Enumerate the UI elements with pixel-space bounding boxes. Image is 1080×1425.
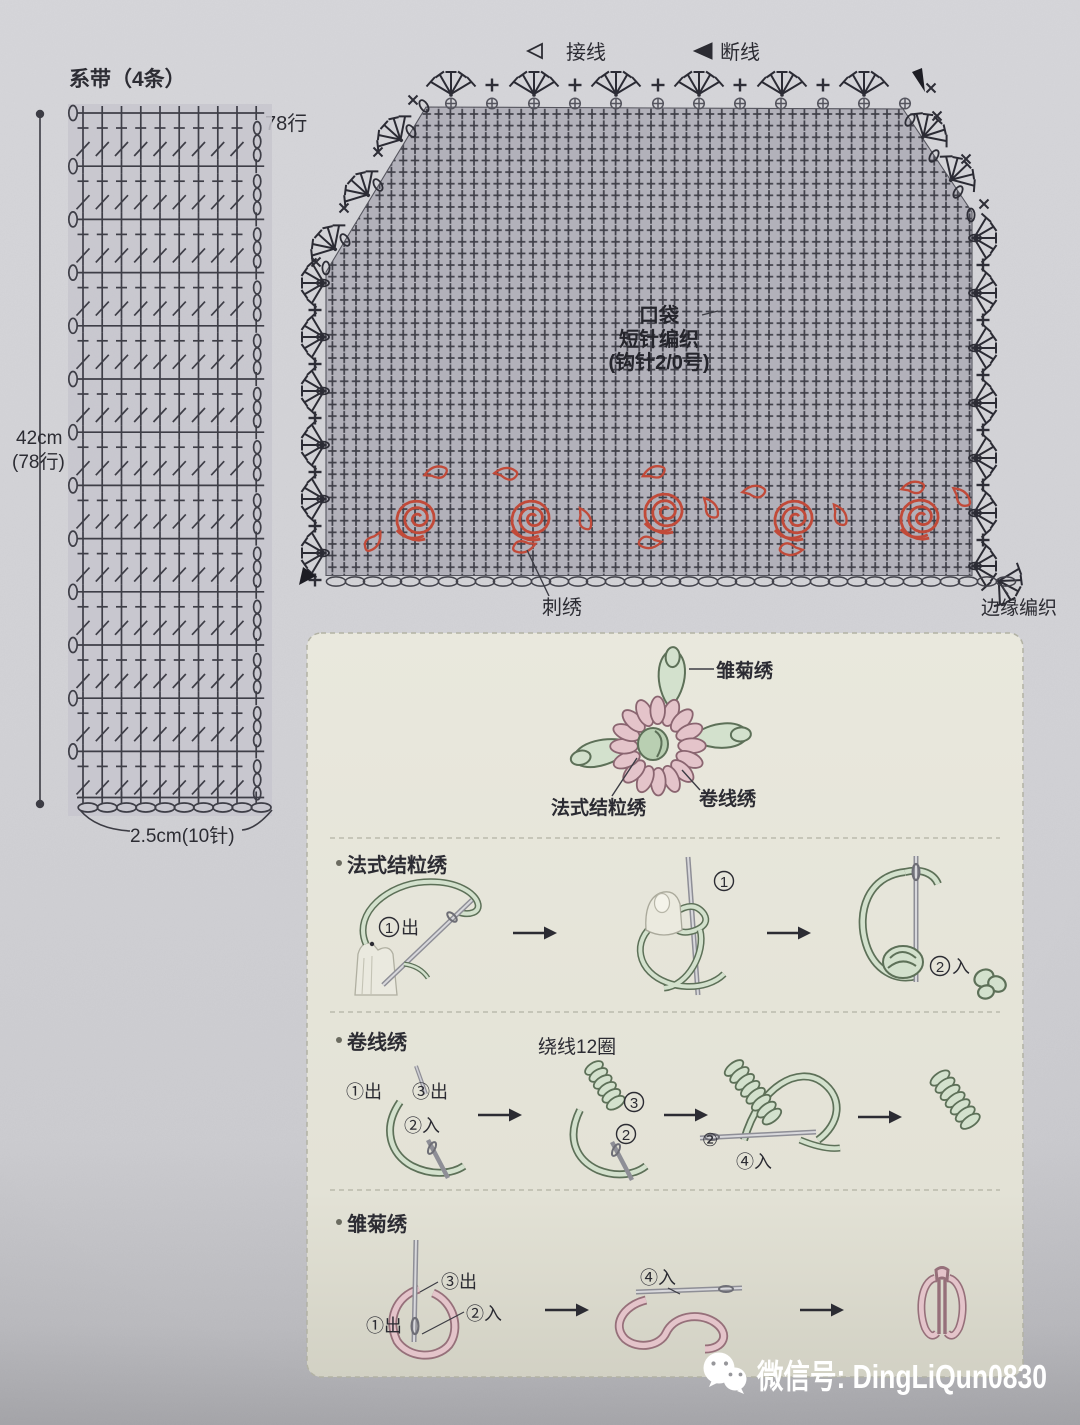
svg-text:42cm: 42cm [16, 428, 62, 449]
svg-text:刺绣: 刺绣 [542, 596, 582, 619]
svg-text:卷线绣: 卷线绣 [347, 1030, 408, 1054]
svg-text:(钩针2/0号): (钩针2/0号) [608, 350, 709, 374]
svg-text:雏菊绣: 雏菊绣 [347, 1212, 408, 1236]
svg-text:②入: ②入 [404, 1116, 440, 1136]
svg-text:卷线绣: 卷线绣 [698, 787, 757, 810]
svg-text:微信号: DingLiQun0830: 微信号: DingLiQun0830 [756, 1358, 1047, 1395]
svg-text:绕线12圈: 绕线12圈 [538, 1036, 616, 1058]
svg-text:短针编织: 短针编织 [619, 327, 699, 351]
svg-text:②: ② [702, 1130, 718, 1150]
svg-text:雏菊绣: 雏菊绣 [716, 659, 774, 682]
svg-text:法式结粒绣: 法式结粒绣 [551, 796, 647, 819]
svg-text:③出: ③出 [412, 1082, 448, 1102]
svg-text:2: 2 [936, 959, 944, 976]
svg-text:①出: ①出 [346, 1082, 382, 1102]
svg-text:法式结粒绣: 法式结粒绣 [347, 853, 448, 877]
svg-text:系带（4条）: 系带（4条） [69, 67, 186, 91]
svg-text:接线: 接线 [566, 41, 606, 64]
svg-text:3: 3 [630, 1095, 638, 1112]
svg-text:②入: ②入 [466, 1304, 502, 1324]
svg-text:断线: 断线 [720, 41, 760, 64]
svg-text:(78行): (78行) [12, 451, 65, 473]
svg-text:边缘编织: 边缘编织 [981, 597, 1057, 619]
svg-text:④入: ④入 [736, 1152, 772, 1172]
svg-text:2: 2 [622, 1127, 630, 1144]
svg-text:④入: ④入 [640, 1268, 676, 1288]
svg-text:口袋: 口袋 [639, 303, 680, 327]
svg-text:①出: ①出 [366, 1316, 402, 1336]
svg-text:入: 入 [952, 957, 970, 977]
svg-text:2.5cm(10针): 2.5cm(10针) [130, 825, 235, 847]
svg-text:1: 1 [720, 874, 728, 891]
svg-text:出: 出 [401, 918, 419, 938]
svg-text:③出: ③出 [441, 1272, 477, 1292]
svg-text:1: 1 [385, 920, 393, 937]
